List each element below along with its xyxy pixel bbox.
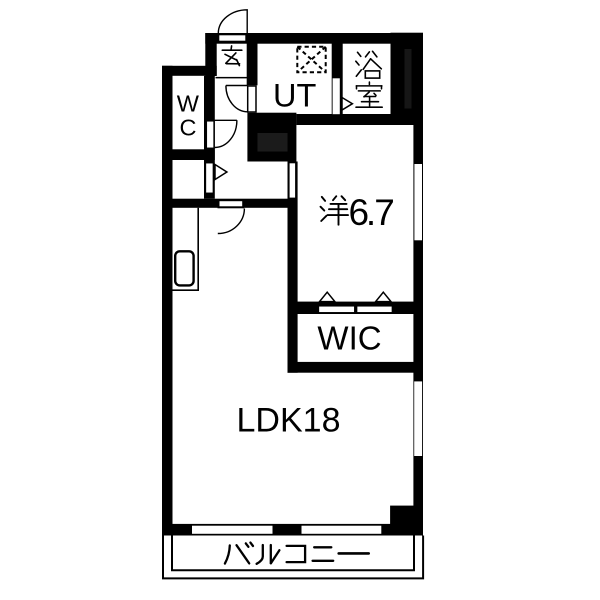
svg-text:WIC: WIC [317, 319, 381, 356]
svg-text:UT: UT [273, 78, 316, 114]
svg-text:W: W [177, 91, 200, 117]
svg-text:7: 7 [374, 192, 395, 233]
svg-text:LDK18: LDK18 [237, 402, 341, 440]
svg-text:C: C [180, 114, 197, 140]
